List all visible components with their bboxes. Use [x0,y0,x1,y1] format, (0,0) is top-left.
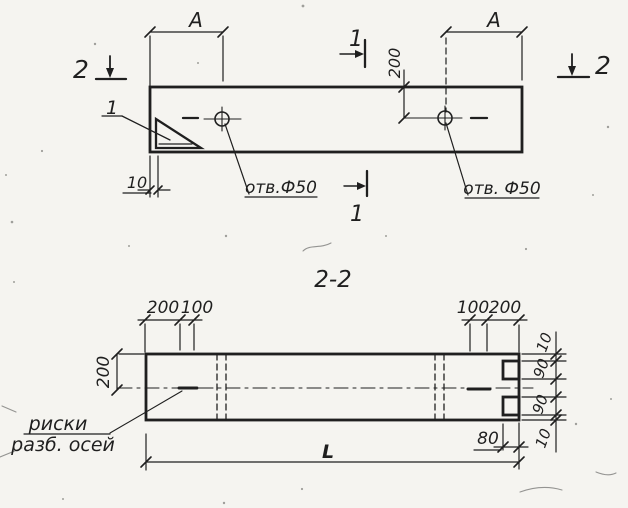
dim-a-left: A [145,8,228,86]
hole-label-right: отв. Ф50 [463,179,540,199]
note-line1: риски [28,413,88,435]
dim-200-top-view: 200 [385,48,428,123]
dim-10-top-label: 10 [533,330,556,354]
dim-200-right-label: 200 [489,298,521,318]
dim-10-label: 10 [127,173,147,192]
dim-90-top-label: 90 [530,356,553,380]
dim-10-top-view: 10 [123,156,170,197]
hole-callout-right: отв. Ф50 [446,123,541,199]
stray-mark [2,406,16,412]
centre-axis-line [118,388,533,389]
section-marker-1-bottom: 1 [344,171,367,227]
dim-200-label: 200 [385,48,404,79]
technical-drawing: A A 200 2 [0,0,628,508]
section-view: 200 100 100 200 200 риски разб. [10,298,566,470]
plan-view: A A 200 2 [73,8,611,227]
section-title: 2-2 [303,243,352,293]
dim-80-label: 80 [477,429,499,449]
section-title-label: 2-2 [314,267,352,293]
hole-left [183,107,241,131]
dim-a-right-label: A [485,8,501,32]
notch-lower [503,397,519,415]
section-1-top-label: 1 [349,27,363,52]
hidden-hole-right [435,354,444,420]
dim-10-bottom-label: 10 [532,426,555,450]
note-line2: разб. осей [10,434,115,456]
down-arrow-icon [568,66,576,76]
stray-mark [520,487,562,492]
hole-label-left: отв.Ф50 [245,178,317,198]
corner-triangle-mark [156,119,201,148]
section-marker-2-right: 2 [558,51,611,80]
detail-callout-1: 1 [102,97,170,140]
dim-200-left-label: 200 [147,298,179,318]
paper-specks [0,5,616,505]
stray-mark [303,243,331,251]
dim-90-bottom-label: 90 [529,392,552,416]
stray-mark [596,472,616,475]
notch-upper [503,361,519,379]
section-beam-outline [146,354,519,420]
section-1-bottom-label: 1 [350,202,364,227]
dim-length-label: L [322,441,334,463]
down-arrow-icon [106,68,114,78]
dim-a-left-label: A [187,8,203,32]
dim-100-right-label: 100 [457,298,489,318]
right-arrow-icon [357,182,366,190]
dim-a-right: A [441,8,527,112]
dim-top-left-group: 200 100 [138,298,213,352]
hidden-hole-left [217,354,226,424]
dim-top-right-group: 100 200 [457,298,527,352]
dim-length-L: L [141,434,524,470]
section-marker-2-left: 2 [73,55,126,84]
section-2-right-label: 2 [595,51,611,80]
section-2-left-label: 2 [73,55,89,84]
axis-marks-note: риски разб. осей [10,391,182,456]
hole-callout-left: отв.Ф50 [225,124,317,198]
section-marker-1-top: 1 [340,27,365,67]
dim-100-left-label: 100 [181,298,213,318]
drawing-sheet: A A 200 2 [0,0,628,508]
dim-side-200-label: 200 [94,356,114,388]
paper-background [0,0,628,508]
dim-right-column: 10 90 90 10 [522,330,566,452]
hole-right [428,106,487,130]
